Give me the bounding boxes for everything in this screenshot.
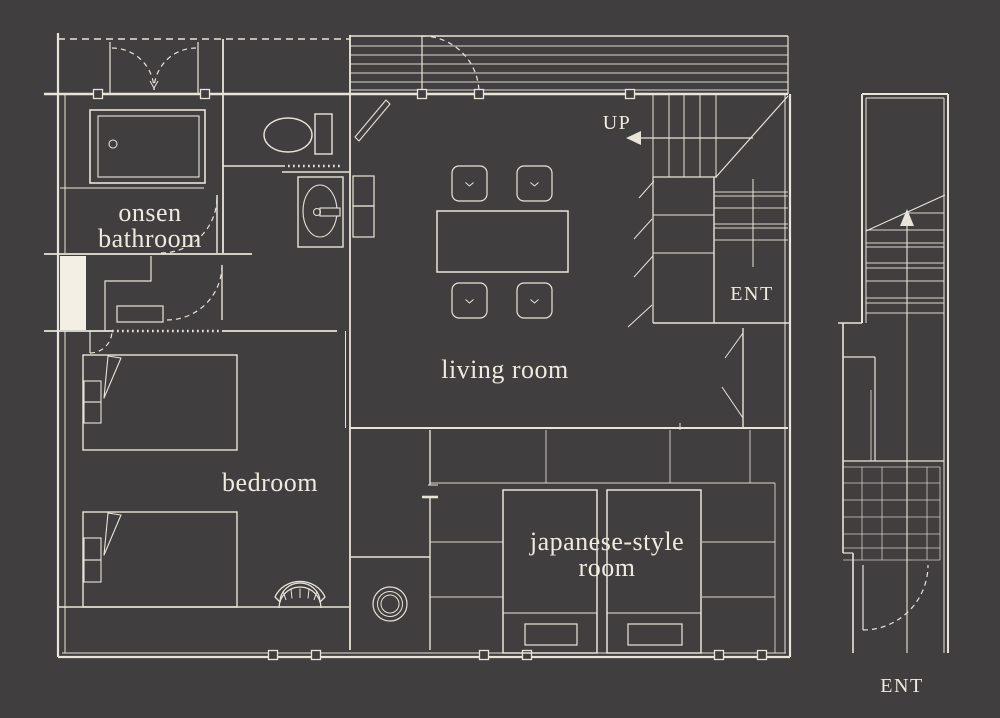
washroom-door-arc <box>167 265 222 320</box>
sliding-door <box>722 328 743 428</box>
fan-heater-icon <box>275 581 325 608</box>
toilet <box>264 114 332 154</box>
bedroom-label: bedroom <box>222 468 318 497</box>
deck-door <box>422 36 479 93</box>
toilet-bowl <box>264 118 312 152</box>
entrance-genkan: ENT <box>653 177 790 323</box>
pillow <box>525 624 577 645</box>
strip-entry-door <box>863 565 928 630</box>
mirror-icon <box>355 100 390 141</box>
strip-tile-floor <box>843 467 940 560</box>
entrance-stairs-label: ENT <box>880 675 923 697</box>
japanese-style-room: japanese-style room <box>430 423 775 653</box>
strip-walls <box>838 94 948 653</box>
hall-cabinet <box>353 176 374 237</box>
bed <box>83 512 237 607</box>
japanese-style-room-label-line1: japanese-style <box>529 527 684 556</box>
floor-cushion <box>452 283 487 318</box>
interior-walls <box>44 35 788 650</box>
floor-cushion <box>517 283 552 318</box>
floor-cushions <box>452 166 552 318</box>
bench <box>117 306 163 322</box>
bathtub <box>60 110 205 188</box>
entrance-steps <box>714 192 788 240</box>
faucet <box>320 208 340 216</box>
entrance-main-label: ENT <box>730 283 773 305</box>
staircase-up: UP <box>603 94 788 177</box>
window-opening <box>60 256 86 330</box>
bathroom-double-door <box>110 42 198 93</box>
onsen-bathroom-label-line1: onsen <box>118 198 181 227</box>
blanket-fold <box>104 356 121 398</box>
toilet-tank <box>315 114 332 154</box>
up-arrow-icon <box>900 209 914 226</box>
blanket-fold <box>104 513 121 555</box>
bathtub-drain <box>109 140 117 148</box>
living-room-label: living room <box>441 355 569 384</box>
japanese-style-room-label-line2: room <box>579 553 636 582</box>
floor-plan: onsen bathroom <box>0 0 1000 718</box>
pillow <box>628 624 682 645</box>
bedroom: bedroom <box>83 355 325 608</box>
floor-plan-canvas: onsen bathroom <box>0 0 1000 718</box>
door-swing-arc <box>863 565 928 630</box>
washing-machine <box>373 587 407 621</box>
sink-vanity <box>298 177 343 247</box>
entry-closet <box>628 177 714 327</box>
stair-entrance-strip: ENT <box>838 94 948 697</box>
strip-staircase <box>866 195 945 653</box>
up-label: UP <box>603 112 632 134</box>
door-swing-arc <box>422 36 479 93</box>
bed <box>83 355 237 450</box>
dining-table <box>437 211 568 272</box>
deck-veranda <box>350 36 788 94</box>
floor-cushion <box>517 166 552 201</box>
floor-cushion <box>452 166 487 201</box>
washroom <box>60 256 222 353</box>
onsen-bathroom-label-line2: bathroom <box>98 224 202 253</box>
outer-walls <box>44 33 790 657</box>
bedroom-door-arc <box>90 331 112 353</box>
main-plan: onsen bathroom <box>44 33 790 660</box>
stair-break-line <box>716 96 788 177</box>
